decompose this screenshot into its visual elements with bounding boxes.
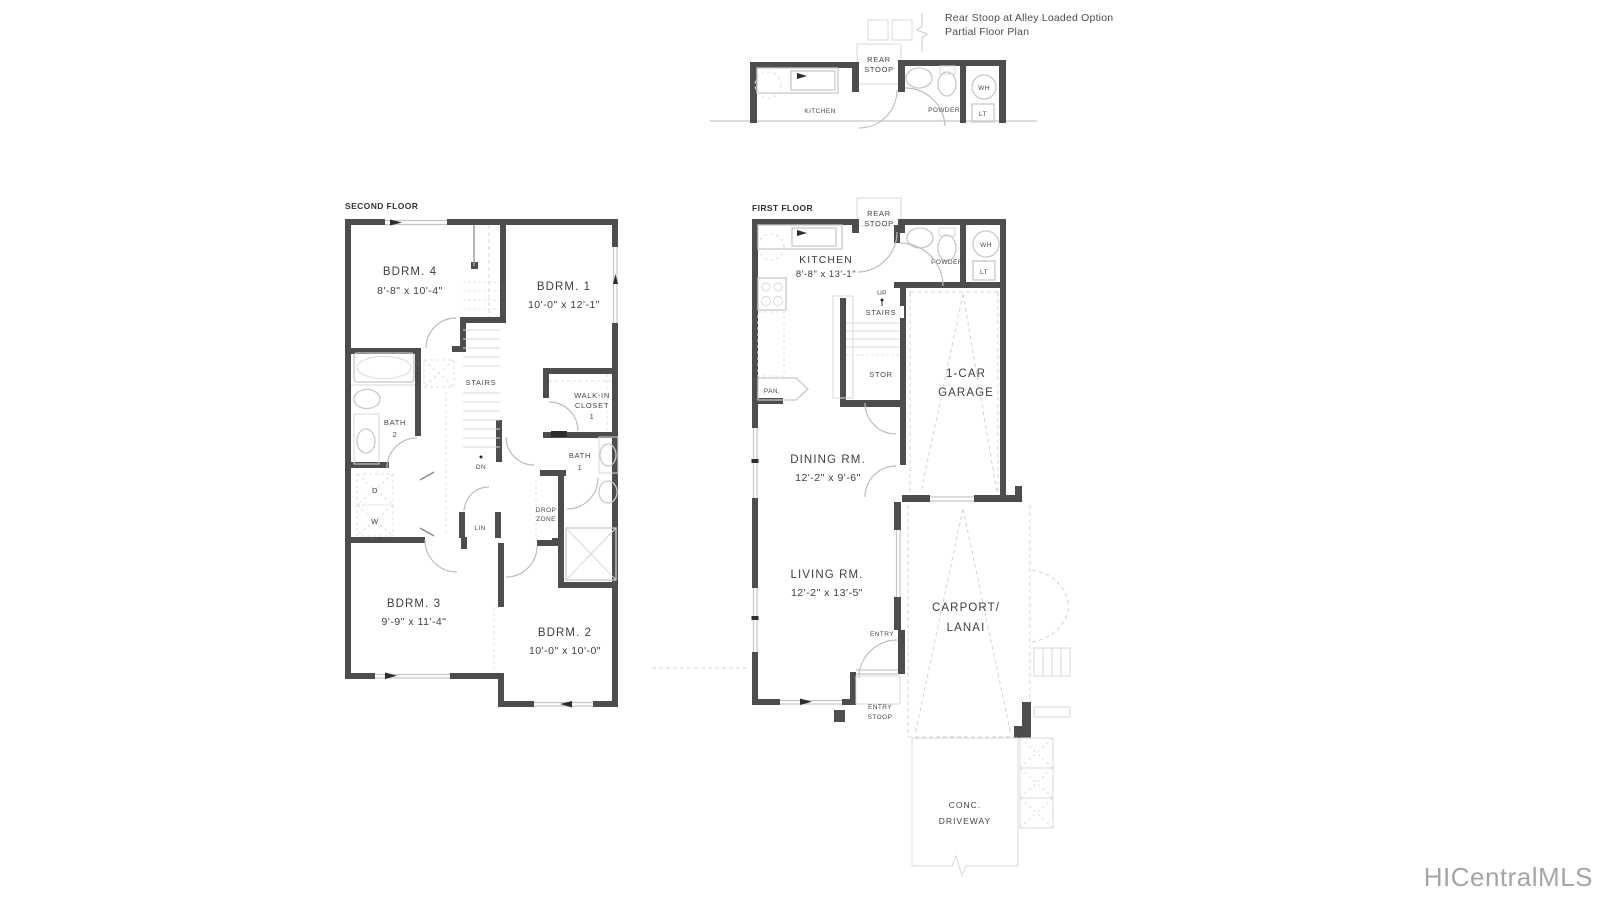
gate-swings-dashed: [1032, 570, 1070, 717]
watermark: HICentralMLS: [1424, 862, 1593, 892]
entry-stoop-outline: [856, 676, 900, 704]
washer-dryer: D W: [357, 472, 434, 536]
kitchen-name: KITCHEN: [799, 254, 853, 266]
dn-label: DN: [476, 464, 486, 471]
rear-stoop-label: STOOP: [864, 65, 894, 74]
entry-label: ENTRY: [870, 631, 894, 638]
second-floor-plan: SECOND FLOOR: [345, 201, 618, 708]
washer-label: W: [371, 517, 379, 526]
stairs-label: STAIRS: [866, 308, 897, 317]
lt-label: LT: [980, 269, 988, 276]
dining-name: DINING RM.: [790, 454, 866, 466]
carport: CARPORT/ LANAI: [908, 505, 1030, 737]
first-floor-windows: [751, 428, 900, 705]
annotation-line2: Partial Floor Plan: [945, 26, 1029, 38]
garage: 1-CAR GARAGE: [910, 292, 998, 501]
dining-dims: 12'-2" x 9'-6": [795, 472, 861, 484]
bath1-label: BATH: [569, 451, 591, 460]
toilet: [938, 72, 956, 96]
floorplan-sheet: REAR STOOP KITCHEN POWDER WH LT Rear: [0, 0, 1600, 899]
entry-stoop-label: ENTRY: [868, 704, 892, 711]
powder-sink: [906, 68, 932, 88]
rear-stoop-label: REAR: [867, 55, 891, 64]
entry-stoop-label: STOOP: [868, 714, 893, 721]
closet-threshold: [551, 431, 567, 437]
attic-hatch: [424, 360, 454, 387]
toilet-tank: [940, 66, 955, 74]
first-floor-plan: FIRST FLOOR REAR STOOP: [652, 198, 1070, 876]
break-symbol: [917, 13, 927, 52]
stairs-label: STAIRS: [466, 378, 497, 387]
carport-label: CARPORT/: [932, 602, 1000, 614]
up-label: UP: [877, 290, 887, 297]
wh-label: WH: [978, 85, 990, 92]
bdrm3-name: BDRM. 3: [387, 598, 441, 610]
cabinet-symbol: [892, 20, 912, 40]
lt-label: LT: [979, 111, 987, 118]
bdrm1-name: BDRM. 1: [537, 281, 591, 293]
stoop-door-arc: [859, 90, 897, 128]
post-marker: [1022, 702, 1031, 738]
driveway-label: CONC.: [949, 800, 981, 810]
rear-stoop-label: REAR: [867, 209, 891, 218]
second-floor-title: SECOND FLOOR: [345, 201, 418, 211]
post-marker: [834, 710, 845, 722]
driveway-label: DRIVEWAY: [939, 816, 991, 826]
post-marker: [1014, 726, 1022, 738]
sink-arrow-icon: [797, 73, 807, 79]
floorplan-drawing: REAR STOOP KITCHEN POWDER WH LT Rear: [0, 0, 1600, 899]
rear-stoop-label: STOOP: [864, 219, 894, 228]
bdrm4-dims: 8'-8" x 10'-4": [377, 285, 443, 297]
bath2-fixtures: [351, 353, 415, 464]
driveway: CONC. DRIVEWAY: [912, 738, 1053, 876]
storage-label: STOR: [869, 370, 893, 379]
bdrm2-name: BDRM. 2: [538, 627, 592, 639]
living-name: LIVING RM.: [791, 569, 864, 581]
bdrm4-name: BDRM. 4: [383, 266, 437, 278]
annotation-line1: Rear Stoop at Alley Loaded Option: [945, 12, 1113, 24]
stairs-first-floor: UP STAIRS STOR: [846, 290, 904, 379]
bath1-number: 1: [578, 463, 583, 472]
bdrm2-dims: 10'-0" x 10'-0": [529, 645, 601, 657]
kitchen-dims: 8'-8" x 13'-1": [796, 269, 856, 280]
living-dims: 12'-2" x 13'-5": [791, 587, 863, 599]
rear-stoop-outline: [857, 44, 901, 84]
carport-label: LANAI: [947, 622, 986, 634]
linen-label: LIN: [474, 525, 485, 532]
first-floor-title: FIRST FLOOR: [752, 203, 813, 213]
pantry-label: PAN.: [764, 388, 780, 395]
bath2-number: 2: [393, 430, 398, 439]
bdrm1-dims: 10'-0" x 12'-1": [528, 299, 600, 311]
cabinet-symbol: [868, 20, 888, 40]
kitchen-label: KITCHEN: [804, 108, 835, 115]
garage-label: GARAGE: [938, 387, 994, 399]
stairs-second-floor: STAIRS DN: [461, 225, 501, 471]
dropzone-label: DROP: [536, 507, 556, 514]
bath2-label: BATH: [384, 418, 406, 427]
corner-cabinet-dashed: [755, 72, 781, 98]
walkin-closet-number: 1: [590, 412, 595, 421]
wh-label: WH: [980, 242, 992, 249]
kitchen-fixtures: [758, 225, 853, 400]
walkin-closet-label: CLOSET: [575, 401, 609, 410]
powder-label: POWDER: [928, 107, 960, 114]
garage-label: 1-CAR: [946, 368, 986, 380]
partial-plan: REAR STOOP KITCHEN POWDER WH LT Rear: [710, 12, 1113, 128]
walkin-closet-label: WALK-IN: [574, 391, 610, 400]
dropzone-label: ZONE: [536, 516, 556, 523]
dryer-label: D: [372, 486, 378, 495]
bdrm3-dims: 9'-9" x 11'-4": [382, 616, 447, 628]
